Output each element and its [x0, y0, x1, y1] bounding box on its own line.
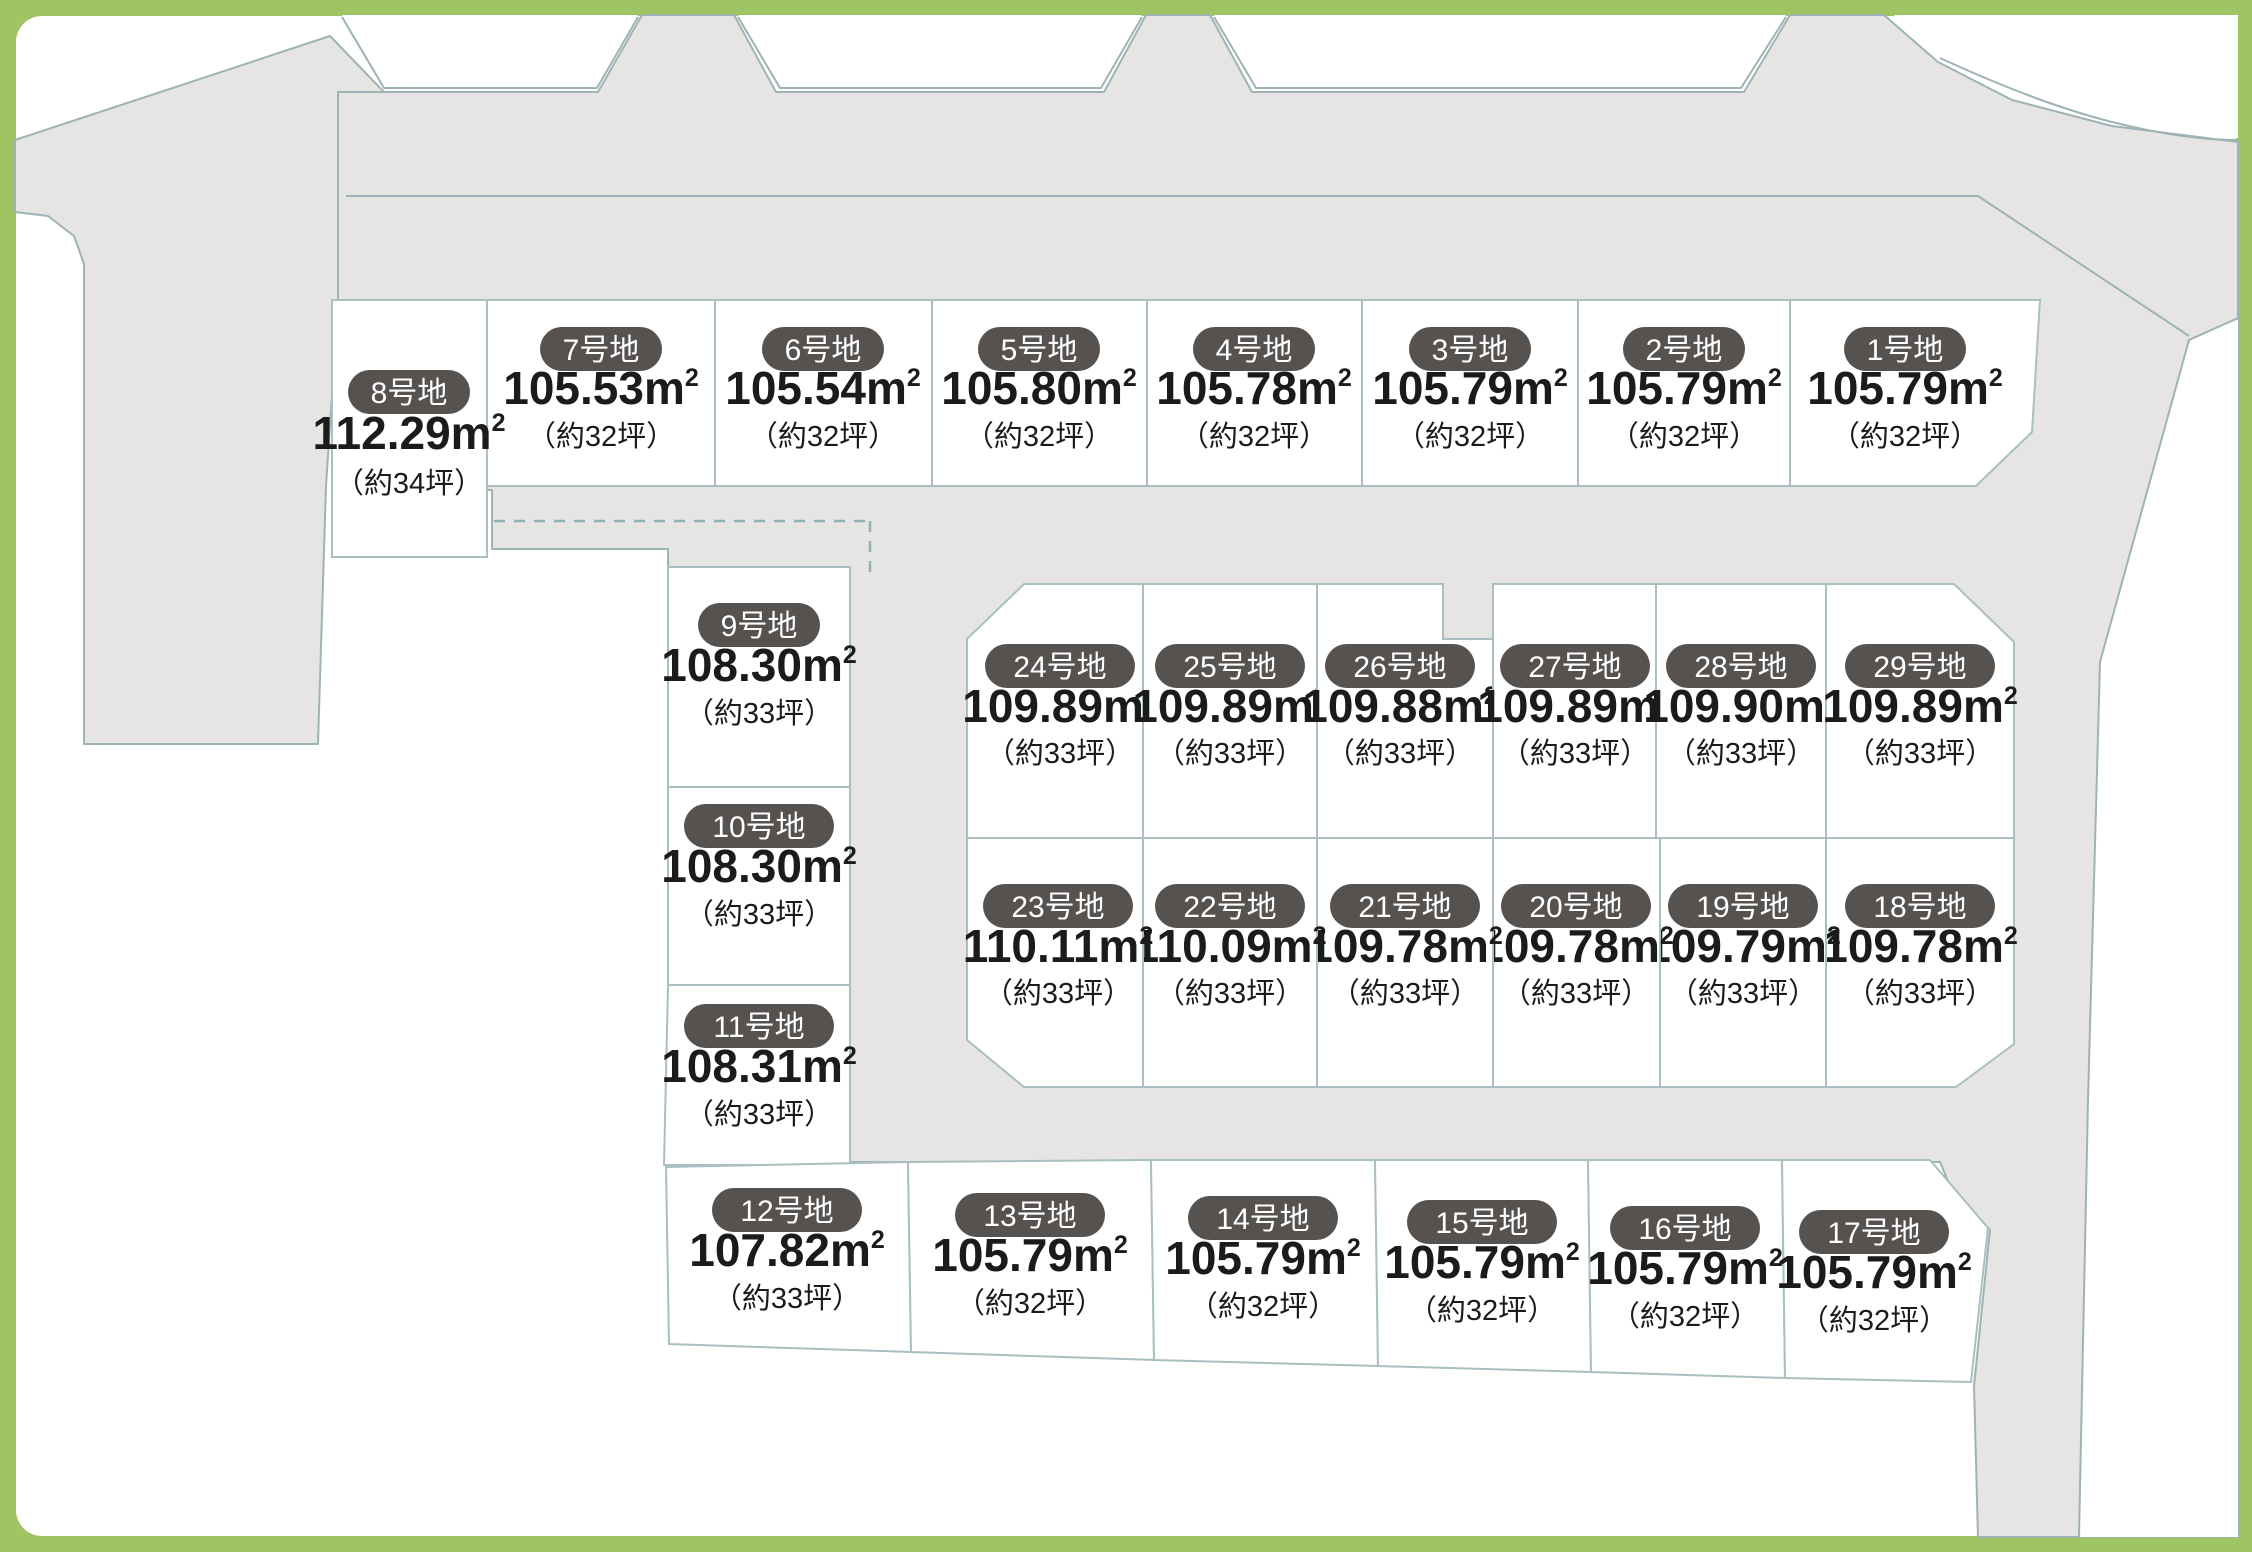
lot-area-value: 105.79m2	[1165, 1232, 1361, 1284]
lot-21: 21号地109.78m2（約33坪）	[1307, 838, 1503, 1087]
lot-13: 13号地105.79m2（約32坪）	[908, 1160, 1154, 1360]
lot-15: 15号地105.79m2（約32坪）	[1375, 1160, 1591, 1372]
lot-area-value: 105.80m2	[941, 362, 1137, 414]
lot-tsubo-value: （約32坪）	[1408, 1294, 1556, 1327]
lot-tsubo-value: （約33坪）	[1502, 977, 1650, 1010]
lot-18: 18号地109.78m2（約33坪）	[1822, 838, 2018, 1087]
lot-10: 10号地108.30m2（約33坪）	[661, 787, 857, 985]
lot-area-value: 112.29m2	[313, 407, 506, 459]
lot-area-value: 110.11m2	[963, 920, 1153, 972]
lot-area-value: 107.82m2	[689, 1224, 885, 1276]
lot-area-value: 109.78m2	[1478, 920, 1674, 972]
lot-area-value: 105.79m2	[1384, 1236, 1580, 1288]
lot-14: 14号地105.79m2（約32坪）	[1151, 1160, 1378, 1366]
lot-28: 28号地109.90m2（約33坪）	[1643, 584, 1839, 838]
lot-area-value: 109.90m2	[1643, 680, 1839, 732]
lot-19: 19号地109.79m2（約33坪）	[1645, 838, 1841, 1087]
lot-area-value: 105.79m2	[1372, 362, 1568, 414]
lot-12: 12号地107.82m2（約33坪）	[666, 1162, 911, 1352]
lot-20: 20号地109.78m2（約33坪）	[1478, 838, 1674, 1087]
lot-tsubo-value: （約33坪）	[1331, 977, 1479, 1010]
lot-map: 1号地105.79m2（約32坪）2号地105.79m2（約32坪）3号地105…	[0, 0, 2252, 1552]
lot-area-value: 109.79m2	[1645, 920, 1841, 972]
lot-area-value: 108.31m2	[661, 1040, 857, 1092]
lot-area-value: 105.53m2	[503, 362, 699, 414]
lot-area-value: 105.79m2	[1586, 362, 1782, 414]
lot-area-value: 105.54m2	[725, 362, 921, 414]
lot-17: 17号地105.79m2（約32坪）	[1776, 1160, 1988, 1382]
lot-29: 29号地109.89m2（約33坪）	[1822, 584, 2018, 838]
lot-tsubo-value: （約32坪）	[749, 420, 897, 453]
lot-tsubo-value: （約33坪）	[685, 898, 833, 931]
lot-area-value: 105.79m2	[1587, 1242, 1783, 1294]
lot-16: 16号地105.79m2（約32坪）	[1587, 1160, 1785, 1378]
lot-area-value: 109.78m2	[1307, 920, 1503, 972]
lot-tsubo-value: （約33坪）	[685, 1098, 833, 1131]
lot-tsubo-value: （約33坪）	[685, 697, 833, 730]
lot-22: 22号地110.09m2（約33坪）	[1134, 838, 1327, 1087]
lot-tsubo-value: （約33坪）	[713, 1282, 861, 1315]
lot-3: 3号地105.79m2（約32坪）	[1362, 300, 1578, 486]
lot-area-value: 109.78m2	[1822, 920, 2018, 972]
lot-tsubo-value: （約33坪）	[1667, 737, 1815, 770]
lot-tsubo-value: （約32坪）	[527, 420, 675, 453]
lot-area-value: 109.88m2	[1302, 680, 1498, 732]
parcel-top-gap-b	[738, 15, 1142, 88]
lot-tsubo-value: （約32坪）	[1180, 420, 1328, 453]
lot-tsubo-value: （約33坪）	[1846, 977, 1994, 1010]
lot-tsubo-value: （約33坪）	[1501, 737, 1649, 770]
lot-area-value: 105.79m2	[1776, 1246, 1972, 1298]
lot-tsubo-value: （約33坪）	[986, 737, 1134, 770]
lot-area-value: 109.89m2	[1132, 680, 1328, 732]
lot-area-value: 108.30m2	[661, 639, 857, 691]
lot-tsubo-value: （約33坪）	[1156, 977, 1304, 1010]
lot-area-value: 105.79m2	[1807, 362, 2003, 414]
lot-6: 6号地105.54m2（約32坪）	[715, 300, 932, 486]
lot-5: 5号地105.80m2（約32坪）	[932, 300, 1147, 486]
lot-tsubo-value: （約33坪）	[1846, 737, 1994, 770]
lot-9: 9号地108.30m2（約33坪）	[661, 567, 857, 787]
lot-area-value: 105.78m2	[1156, 362, 1352, 414]
lot-4: 4号地105.78m2（約32坪）	[1147, 300, 1362, 486]
lot-tsubo-value: （約33坪）	[1669, 977, 1817, 1010]
lot-area-value: 110.09m2	[1134, 920, 1327, 972]
lot-area-value: 105.79m2	[932, 1229, 1128, 1281]
lot-area-value: 108.30m2	[661, 840, 857, 892]
lot-23: 23号地110.11m2（約33坪）	[963, 838, 1153, 1087]
lot-number-label: 8号地	[371, 377, 448, 410]
lot-25: 25号地109.89m2（約33坪）	[1132, 584, 1328, 838]
lot-tsubo-value: （約32坪）	[965, 420, 1113, 453]
lot-tsubo-value: （約32坪）	[1189, 1290, 1337, 1323]
lot-area-value: 109.89m2	[962, 680, 1158, 732]
parcel-top-gap-a	[342, 15, 638, 88]
lot-tsubo-value: （約34坪）	[335, 467, 483, 500]
lot-8: 8号地112.29m2（約34坪）	[313, 300, 506, 557]
lot-tsubo-value: （約33坪）	[984, 977, 1132, 1010]
lot-tsubo-value: （約32坪）	[1396, 420, 1544, 453]
lot-1: 1号地105.79m2（約32坪）	[1790, 300, 2040, 486]
lot-7: 7号地105.53m2（約32坪）	[487, 300, 715, 486]
lot-tsubo-value: （約32坪）	[1831, 420, 1979, 453]
lot-area-value: 109.89m2	[1822, 680, 2018, 732]
lot-tsubo-value: （約33坪）	[1156, 737, 1304, 770]
lot-tsubo-value: （約33坪）	[1326, 737, 1474, 770]
lot-tsubo-value: （約32坪）	[956, 1287, 1104, 1320]
lot-11: 11号地108.31m2（約33坪）	[661, 985, 857, 1165]
lot-tsubo-value: （約32坪）	[1610, 420, 1758, 453]
lot-tsubo-value: （約32坪）	[1800, 1304, 1948, 1337]
lot-24: 24号地109.89m2（約33坪）	[962, 584, 1158, 838]
parcel-top-gap-c	[1214, 15, 1786, 88]
lot-2: 2号地105.79m2（約32坪）	[1578, 300, 1790, 486]
lot-tsubo-value: （約32坪）	[1611, 1300, 1759, 1333]
